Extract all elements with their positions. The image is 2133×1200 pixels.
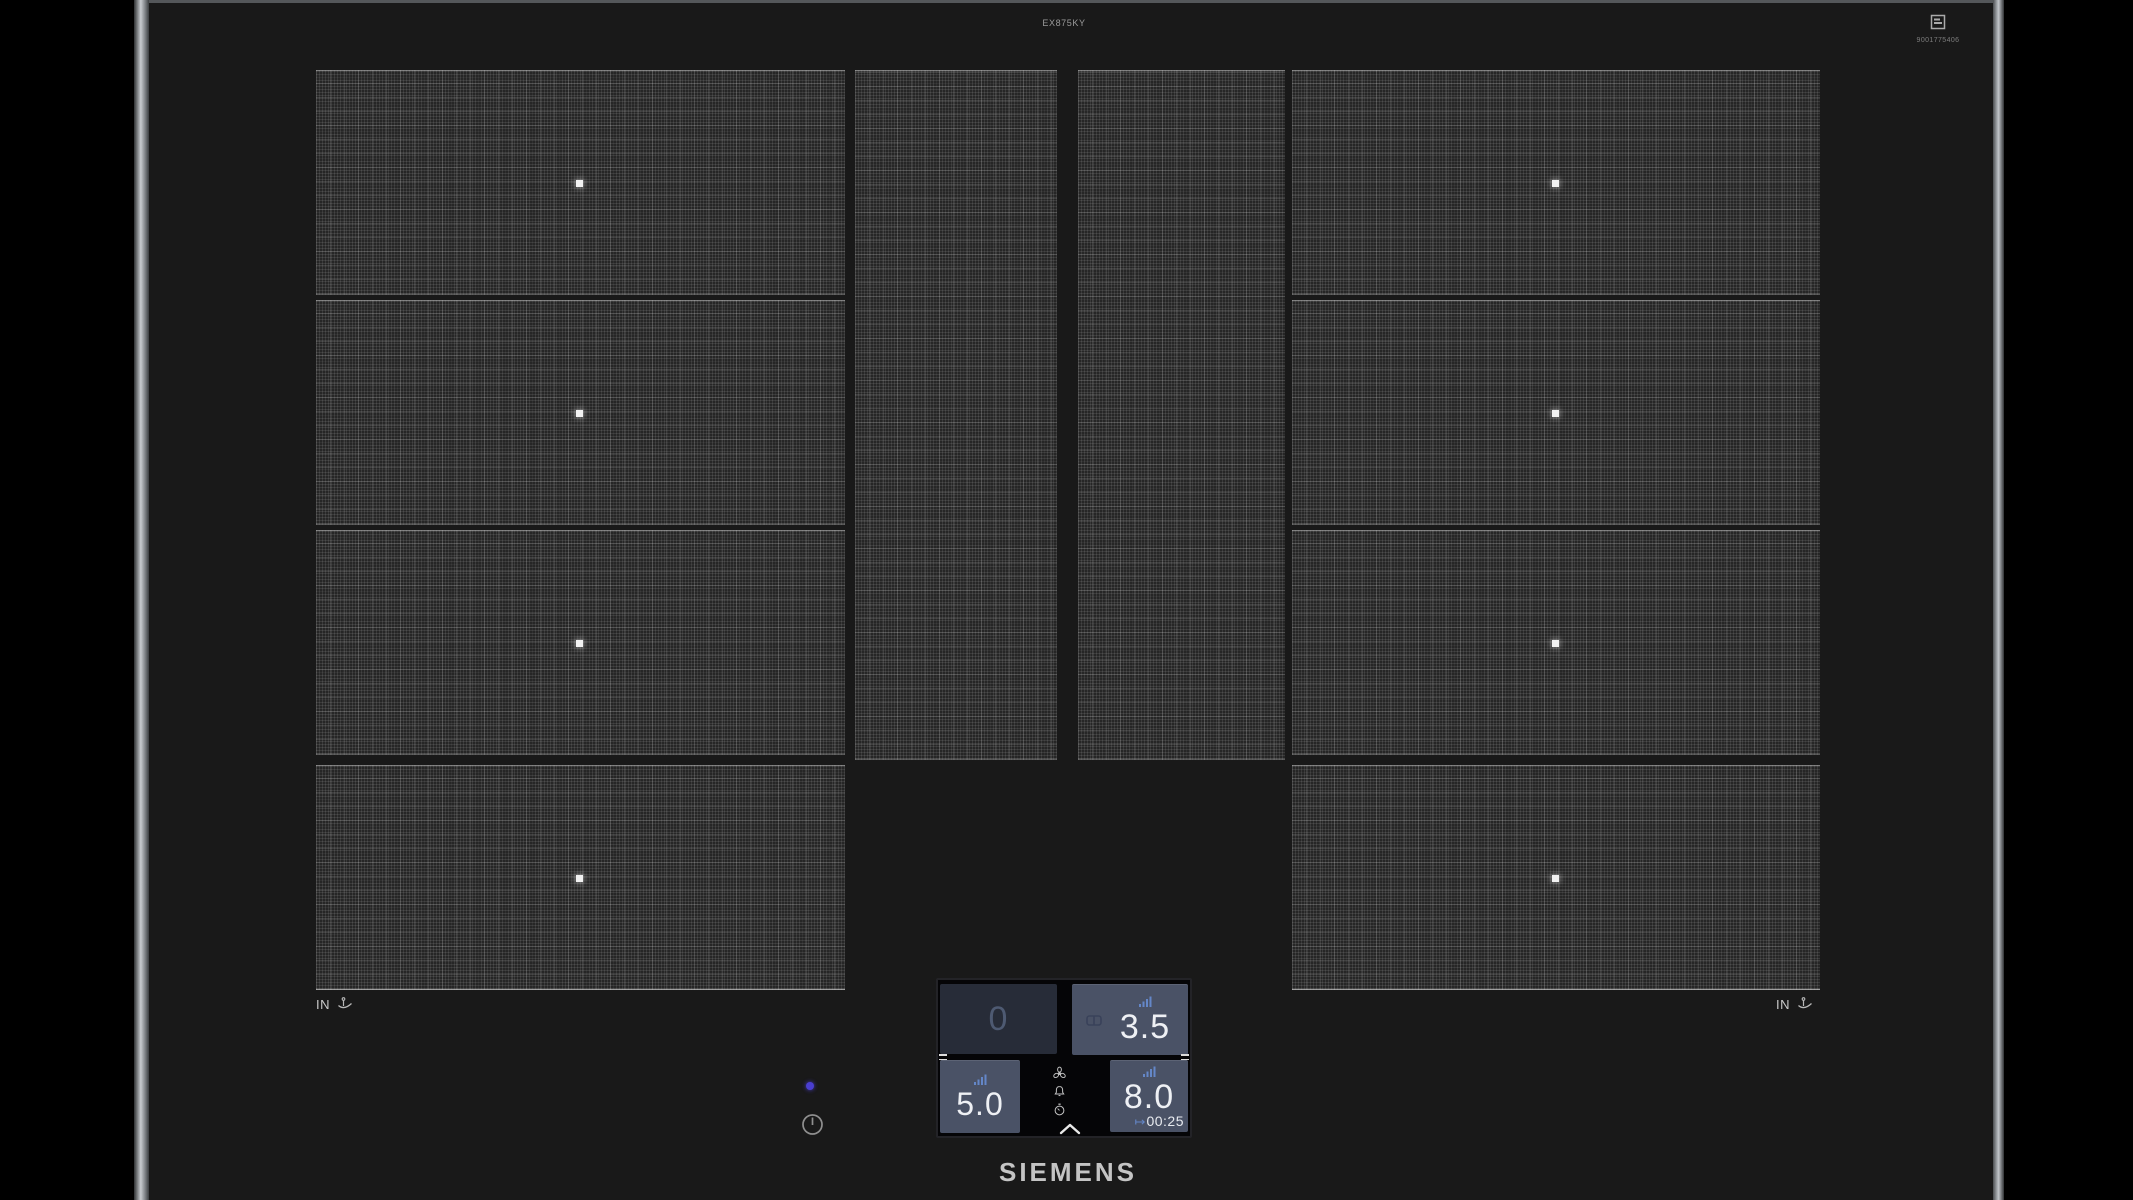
cooking-strip-middle-right[interactable]: [1078, 70, 1285, 760]
cooking-zone-left-1[interactable]: [316, 70, 845, 295]
induction-marking-left: IN: [316, 997, 354, 1012]
serial-number: 9001775406: [1917, 37, 1960, 44]
cooking-zone-left-4[interactable]: [316, 765, 845, 990]
bell-icon[interactable]: [1052, 1084, 1067, 1099]
pan-placement-icon: [1796, 997, 1814, 1012]
panel-function-icons: [1048, 1066, 1070, 1117]
tile-zone-rear-left[interactable]: 5.0: [940, 1060, 1020, 1133]
zone-center-marker: [576, 180, 583, 187]
timer-value: 00:25: [1146, 1113, 1184, 1129]
cooking-zone-right-1[interactable]: [1292, 70, 1820, 295]
left-metal-trim: [134, 0, 149, 1200]
induction-marking-right: IN: [1776, 997, 1814, 1012]
zone-center-marker: [1552, 640, 1559, 647]
cooking-zone-left-2[interactable]: [316, 300, 845, 525]
zone-center-marker: [1552, 180, 1559, 187]
top-metal-trim: [149, 0, 1993, 3]
power-bars-icon: [1143, 1066, 1156, 1077]
panel-grip-right[interactable]: [1181, 1054, 1189, 1060]
cooktop-screen: EX875KY 9001775406 IN IN: [0, 0, 2133, 1200]
bridge-zone-icon: [1086, 1015, 1102, 1026]
cooking-strip-middle-left[interactable]: [855, 70, 1057, 760]
control-panel: 0 3.5: [936, 978, 1192, 1138]
zone-center-marker: [1552, 875, 1559, 882]
power-level: 0: [989, 1002, 1009, 1036]
chevron-up-icon[interactable]: [1056, 1122, 1084, 1136]
power-button[interactable]: [800, 1112, 825, 1137]
zone-center-marker: [1552, 410, 1559, 417]
panel-grip-left[interactable]: [939, 1054, 947, 1060]
power-level: 5.0: [956, 1088, 1003, 1120]
tile-zone-front-left[interactable]: 0: [940, 984, 1057, 1054]
pan-placement-icon: [336, 997, 354, 1012]
zone-center-marker: [576, 410, 583, 417]
cooking-zone-right-2[interactable]: [1292, 300, 1820, 525]
energy-label-icon: [1930, 14, 1946, 30]
fan-icon[interactable]: [1052, 1066, 1067, 1081]
power-bars-icon: [974, 1074, 987, 1085]
power-level: 3.5: [1120, 1010, 1170, 1044]
zone-center-marker: [576, 640, 583, 647]
cooking-zone-right-3[interactable]: [1292, 530, 1820, 755]
cooking-zone-left-3[interactable]: [316, 530, 845, 755]
stopwatch-icon[interactable]: [1052, 1102, 1067, 1117]
timer-until-icon: ↦: [1135, 1115, 1146, 1128]
tile-zone-front-right[interactable]: 3.5: [1072, 984, 1188, 1055]
induction-label: IN: [316, 997, 330, 1012]
model-label: EX875KY: [964, 18, 1164, 28]
status-led: [806, 1082, 814, 1090]
tile-zone-rear-right[interactable]: 8.0 ↦ 00:25: [1110, 1060, 1188, 1132]
power-level: 8.0: [1124, 1080, 1174, 1114]
power-bars-icon: [1139, 996, 1152, 1007]
right-metal-trim: [1993, 0, 2004, 1200]
induction-label: IN: [1776, 997, 1790, 1012]
brand-logo: SIEMENS: [918, 1157, 1218, 1188]
zone-timer: ↦ 00:25: [1135, 1113, 1184, 1129]
zone-center-marker: [576, 875, 583, 882]
rating-block: 9001775406: [1898, 14, 1978, 44]
cooking-zone-right-4[interactable]: [1292, 765, 1820, 990]
